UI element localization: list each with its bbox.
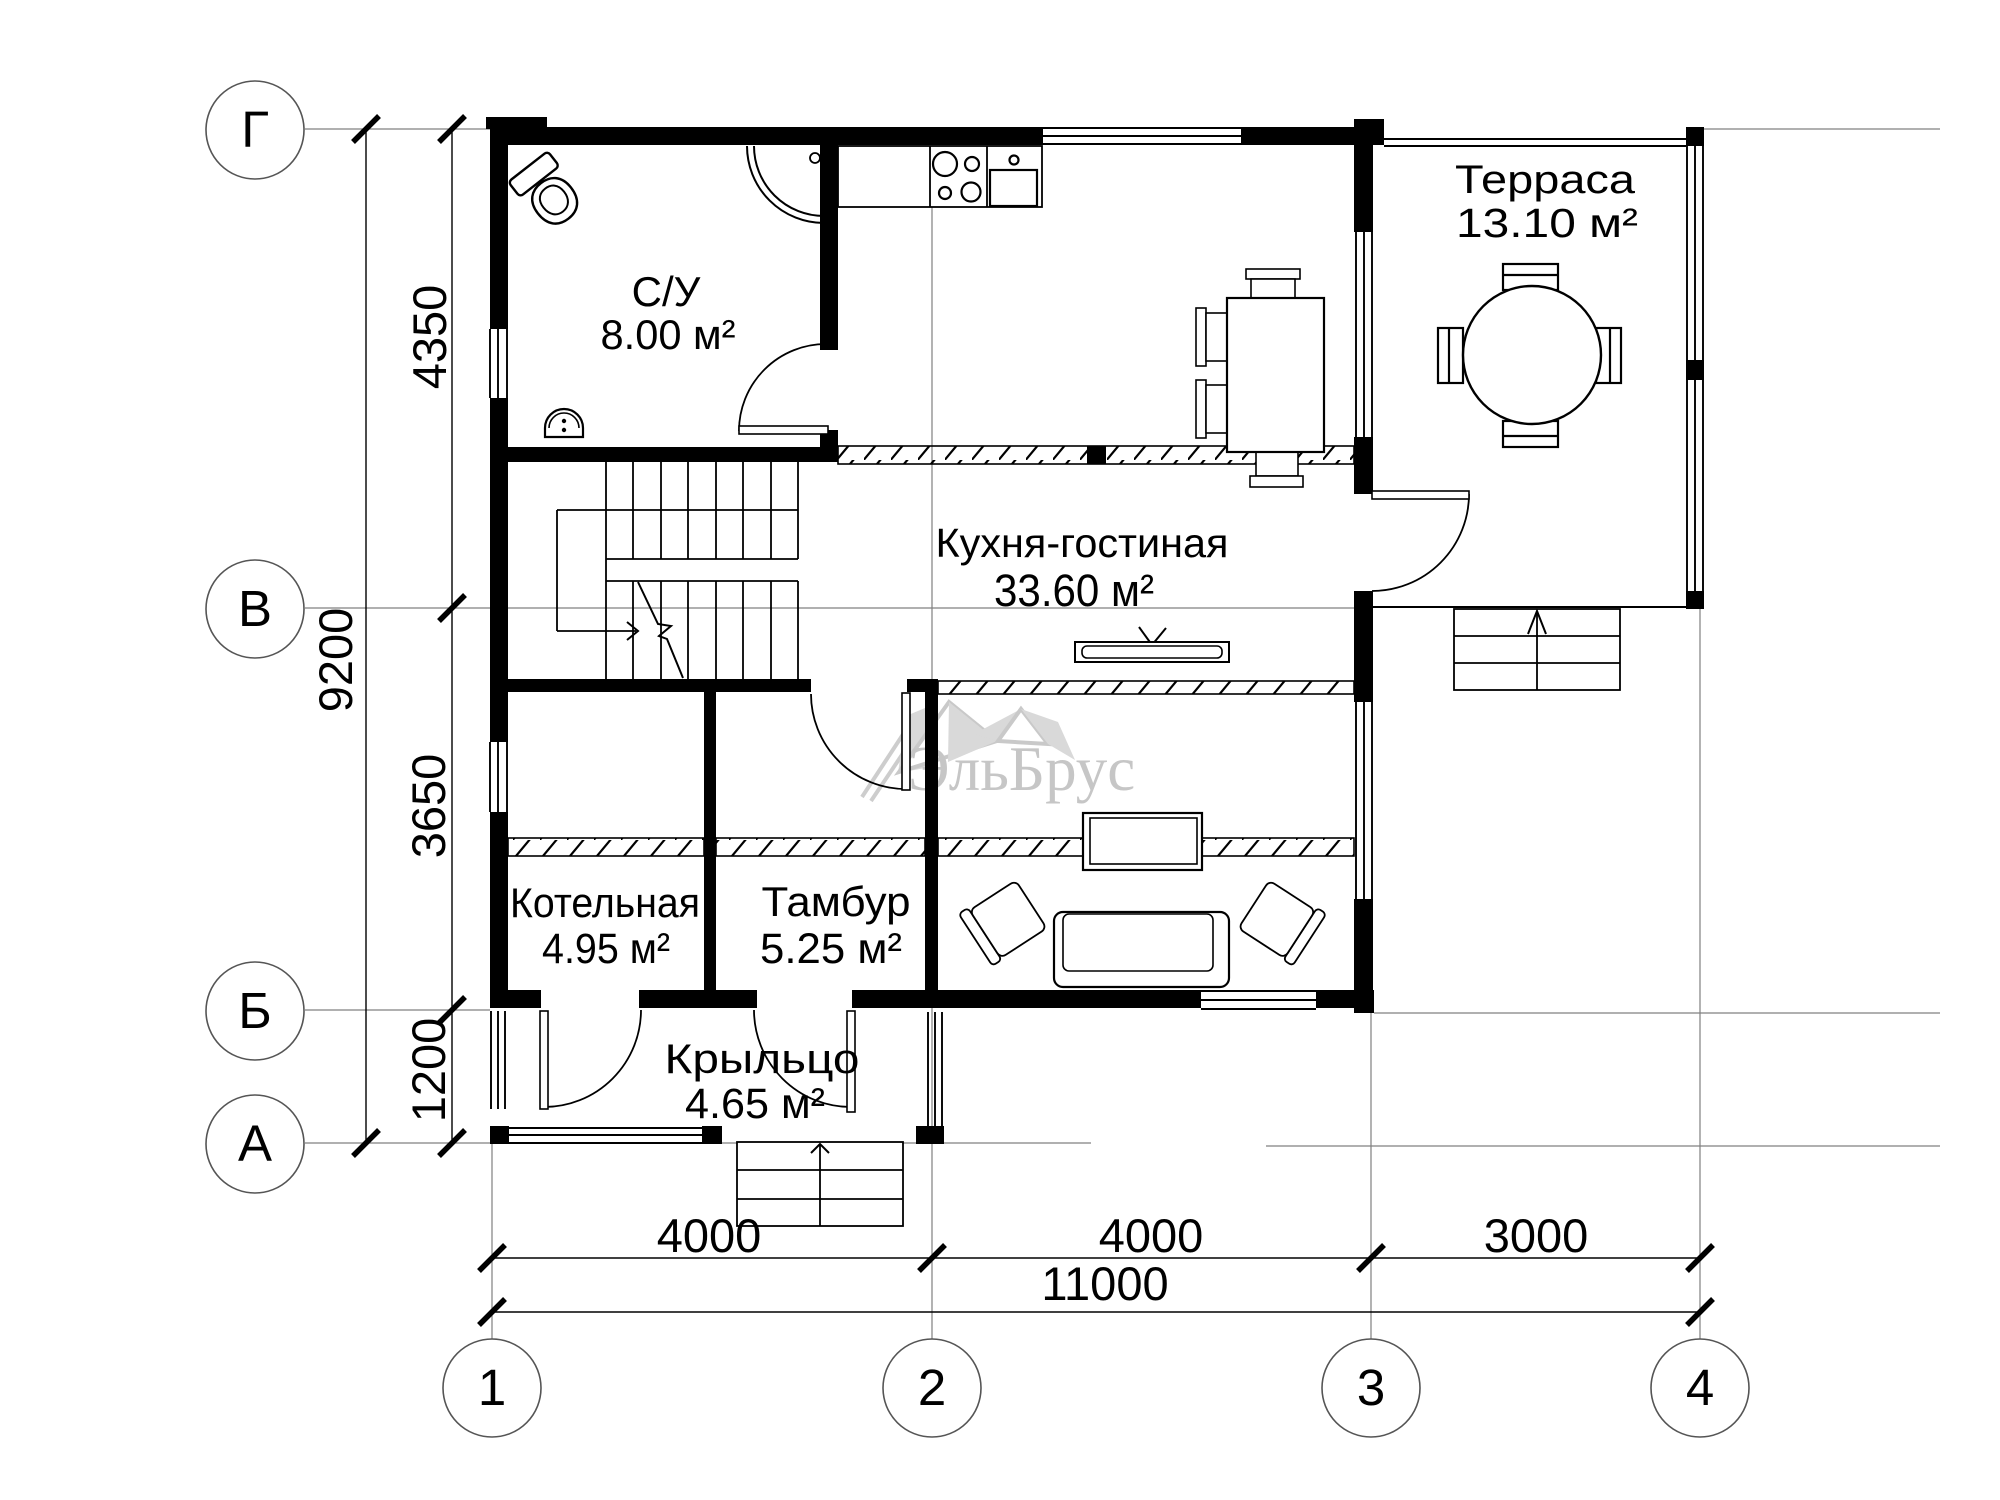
svg-text:33.60 м²: 33.60 м² <box>994 565 1154 616</box>
svg-text:11000: 11000 <box>1041 1257 1168 1310</box>
svg-text:4000: 4000 <box>657 1209 762 1262</box>
svg-text:Терраса: Терраса <box>1455 158 1636 202</box>
svg-text:3000: 3000 <box>1484 1209 1589 1262</box>
svg-text:1: 1 <box>478 1359 506 1416</box>
svg-text:ЭльБрус: ЭльБрус <box>908 734 1135 804</box>
svg-text:Тамбур: Тамбур <box>762 878 911 925</box>
svg-text:4000: 4000 <box>1099 1209 1204 1262</box>
svg-text:3: 3 <box>1357 1359 1385 1416</box>
svg-text:1200: 1200 <box>402 1018 455 1123</box>
svg-text:А: А <box>238 1115 272 1172</box>
svg-text:4350: 4350 <box>403 285 456 390</box>
svg-text:8.00 м²: 8.00 м² <box>601 311 736 358</box>
svg-text:С/У: С/У <box>632 268 701 315</box>
svg-text:5.25 м²: 5.25 м² <box>760 925 902 973</box>
svg-text:4: 4 <box>1686 1359 1714 1416</box>
svg-text:9200: 9200 <box>309 608 362 713</box>
svg-text:Крыльцо: Крыльцо <box>665 1035 860 1082</box>
svg-text:В: В <box>238 580 272 637</box>
svg-text:Г: Г <box>241 101 269 158</box>
svg-text:13.10 м²: 13.10 м² <box>1456 200 1638 246</box>
svg-text:Б: Б <box>238 982 271 1039</box>
svg-text:4.65 м²: 4.65 м² <box>685 1080 825 1128</box>
svg-text:Котельная: Котельная <box>510 879 700 926</box>
svg-text:Кухня-гостиная: Кухня-гостиная <box>936 520 1229 566</box>
svg-text:2: 2 <box>918 1359 946 1416</box>
svg-text:3650: 3650 <box>402 754 455 859</box>
svg-text:4.95 м²: 4.95 м² <box>542 925 670 973</box>
